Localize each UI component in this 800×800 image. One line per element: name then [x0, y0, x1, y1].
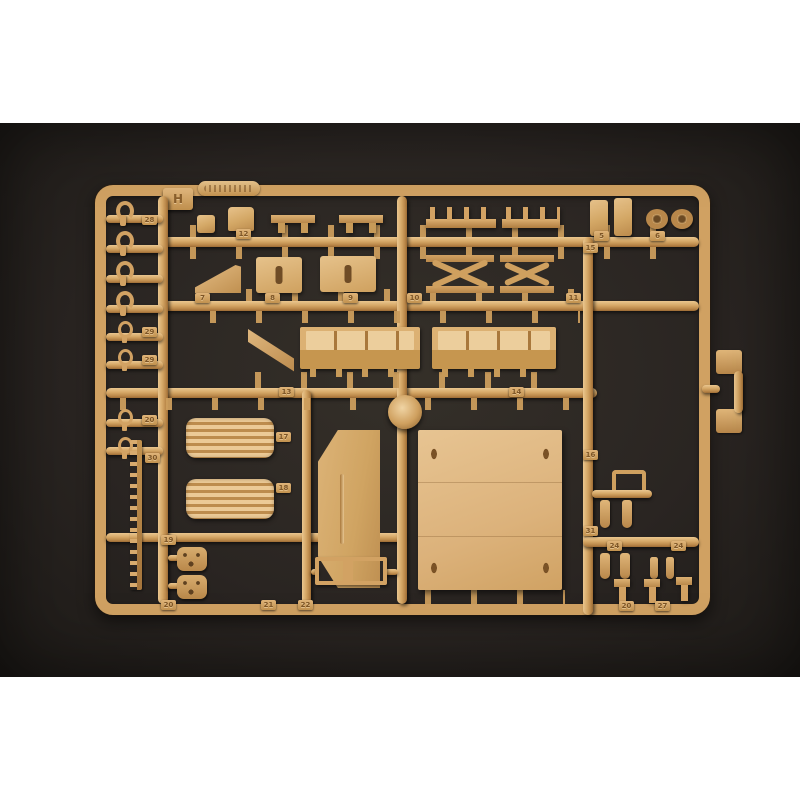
gate-pegs — [210, 311, 580, 323]
part-number-tab: 20 — [619, 601, 634, 611]
part-peg — [650, 557, 658, 579]
part-lever — [614, 579, 630, 603]
part-louvered-panel — [186, 418, 274, 458]
part-number-tab: 24 — [671, 541, 686, 551]
part-number-tab: 20 — [161, 600, 176, 610]
sprue-photo: H — [0, 123, 800, 677]
part-clamp — [228, 207, 254, 231]
part-tow-hook — [114, 231, 130, 256]
part-pin-rail — [502, 207, 560, 229]
part-u-bracket — [612, 470, 646, 490]
part-number-tab: 19 — [161, 535, 176, 545]
part-scissor-frame — [500, 255, 554, 293]
part-peg — [600, 500, 610, 528]
part-number-tab: 22 — [298, 600, 313, 610]
runner-pegs-31 — [592, 490, 652, 498]
part-number-tab: 13 — [279, 387, 294, 397]
part-number-tab: 31 — [583, 526, 598, 536]
part-number-tab: 21 — [261, 600, 276, 610]
part-number-tab: 14 — [509, 387, 524, 397]
part-number-tab: 15 — [583, 243, 598, 253]
part-ladder-strip — [130, 440, 142, 590]
part-lifting-eye — [671, 209, 693, 229]
part-number-tab: 18 — [276, 483, 291, 493]
part-number-tab: 8 — [265, 293, 280, 303]
part-perforated-bracket — [177, 575, 207, 599]
part-tow-hook — [114, 261, 130, 286]
part-small-bracket — [197, 215, 215, 233]
part-number-tab: 9 — [343, 293, 358, 303]
part-number-tab: 30 — [145, 453, 160, 463]
part-peg — [600, 553, 610, 579]
part-shackle — [116, 437, 131, 459]
part-lifting-eye — [646, 209, 668, 229]
part-tow-hook — [114, 201, 130, 226]
part-number-tab: 11 — [566, 293, 581, 303]
part-slotted-box — [256, 257, 302, 293]
gate-pegs — [120, 398, 390, 410]
part-number-tab: 29 — [142, 355, 157, 365]
part-slotted-box — [320, 256, 376, 292]
part-number-tab: 17 — [276, 432, 291, 442]
part-side-panel — [432, 327, 556, 369]
part-scissor-frame — [426, 255, 494, 293]
part-shackle — [116, 349, 131, 371]
part-shackle — [116, 321, 131, 343]
part-h-frame — [315, 557, 387, 585]
rail-vertical-right — [583, 237, 593, 615]
part-number-tab: 27 — [655, 601, 670, 611]
gate-pegs — [425, 398, 575, 410]
part-number-tab: 5 — [594, 231, 609, 241]
part-peg — [622, 500, 632, 528]
rail-vertical-mid-left — [302, 390, 311, 604]
part-number-tab: 6 — [650, 231, 665, 241]
part-number-tab: 16 — [583, 450, 598, 460]
part-number-tab: 10 — [407, 293, 422, 303]
part-number-tab: 24 — [607, 541, 622, 551]
part-side-panel — [300, 327, 420, 369]
part-flat-tee — [271, 215, 315, 233]
part-perforated-bracket — [177, 547, 207, 571]
part-lever — [676, 577, 692, 601]
part-number-tab: 28 — [142, 215, 157, 225]
part-shackle — [116, 409, 131, 431]
brand-plate — [198, 181, 260, 196]
part-number-tab: 20 — [142, 415, 157, 425]
part-number-tab: 29 — [142, 327, 157, 337]
part-flat-tee — [339, 215, 383, 233]
part-number-tab: 7 — [195, 293, 210, 303]
part-lever — [644, 579, 660, 603]
part-louvered-panel — [186, 479, 274, 519]
part-number-tab: 12 — [236, 229, 251, 239]
foot-pad-connector — [734, 371, 743, 413]
part-tow-hook — [114, 291, 130, 316]
rail-horizontal-2 — [158, 301, 699, 311]
injection-gate-node — [388, 395, 422, 429]
runner-foot-pads — [702, 385, 720, 393]
part-peg — [666, 557, 674, 579]
part-pin-rail — [426, 207, 496, 229]
gate-pegs — [425, 590, 565, 604]
part-peg — [620, 553, 630, 579]
part-post — [614, 198, 632, 236]
part-deck-panel — [418, 430, 562, 590]
